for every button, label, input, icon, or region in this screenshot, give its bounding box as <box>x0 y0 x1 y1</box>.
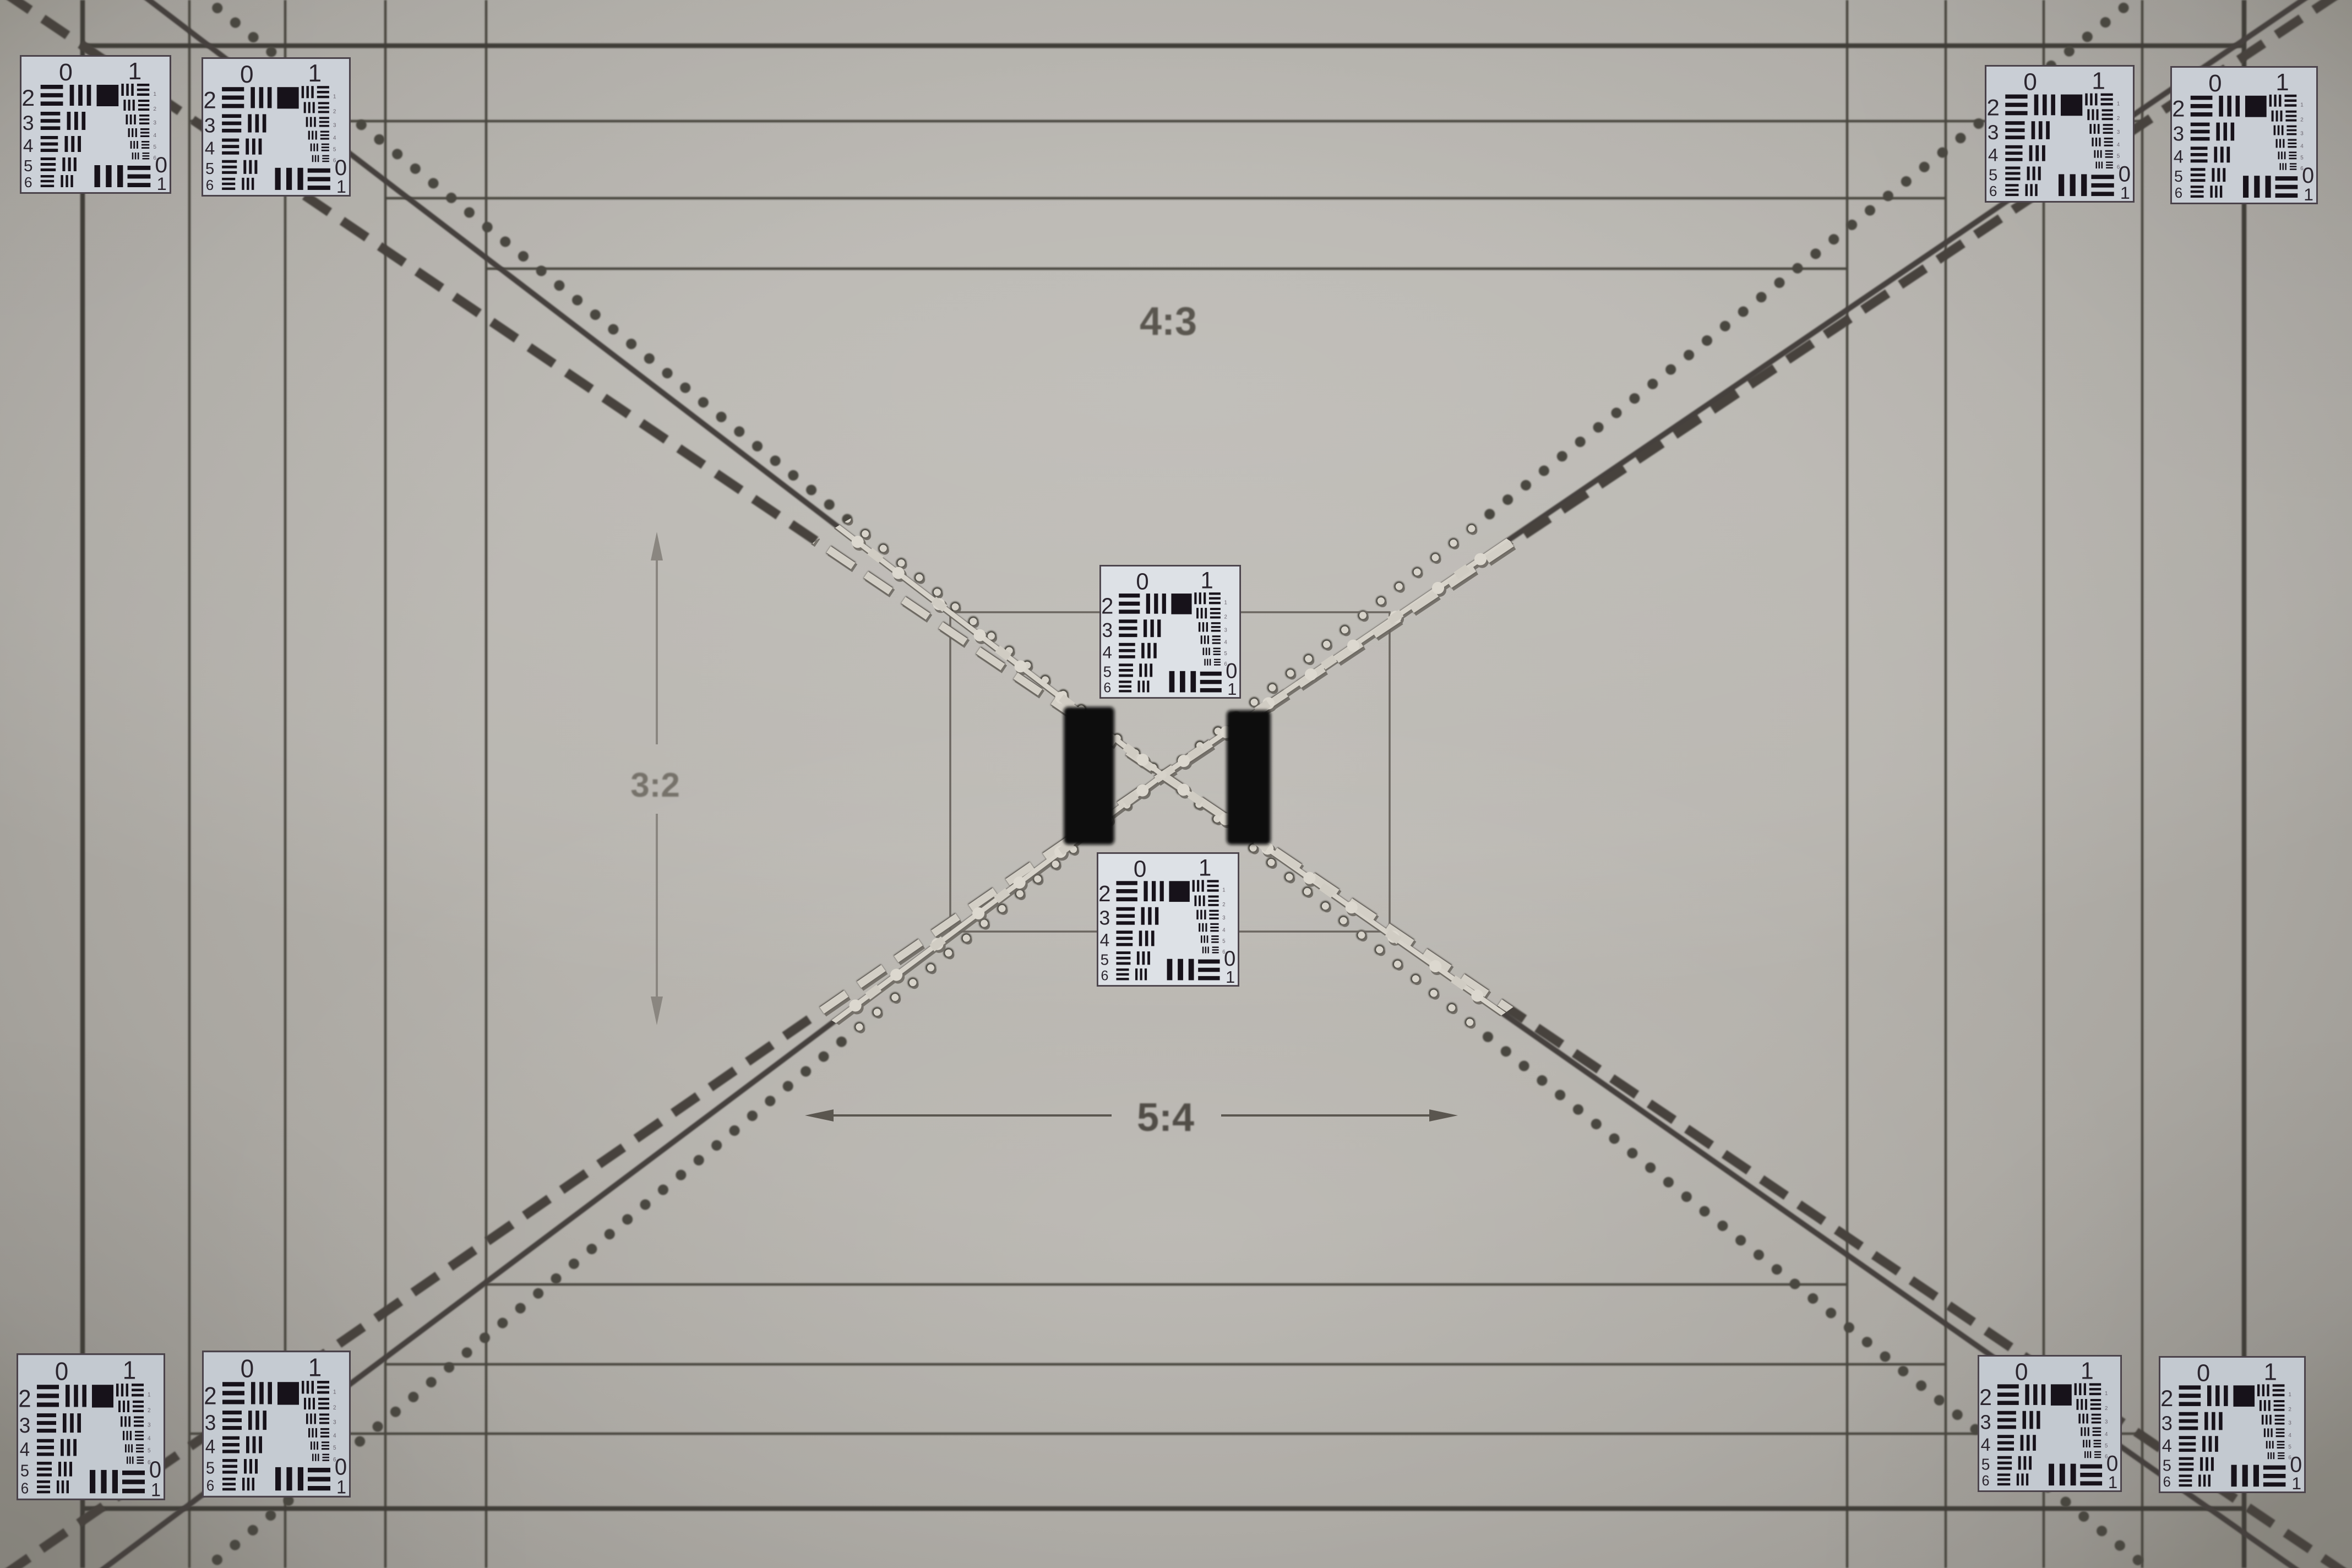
svg-text:5:4: 5:4 <box>1137 1096 1194 1140</box>
svg-text:4:3: 4:3 <box>1140 300 1197 344</box>
svg-text:3:2: 3:2 <box>630 766 680 804</box>
